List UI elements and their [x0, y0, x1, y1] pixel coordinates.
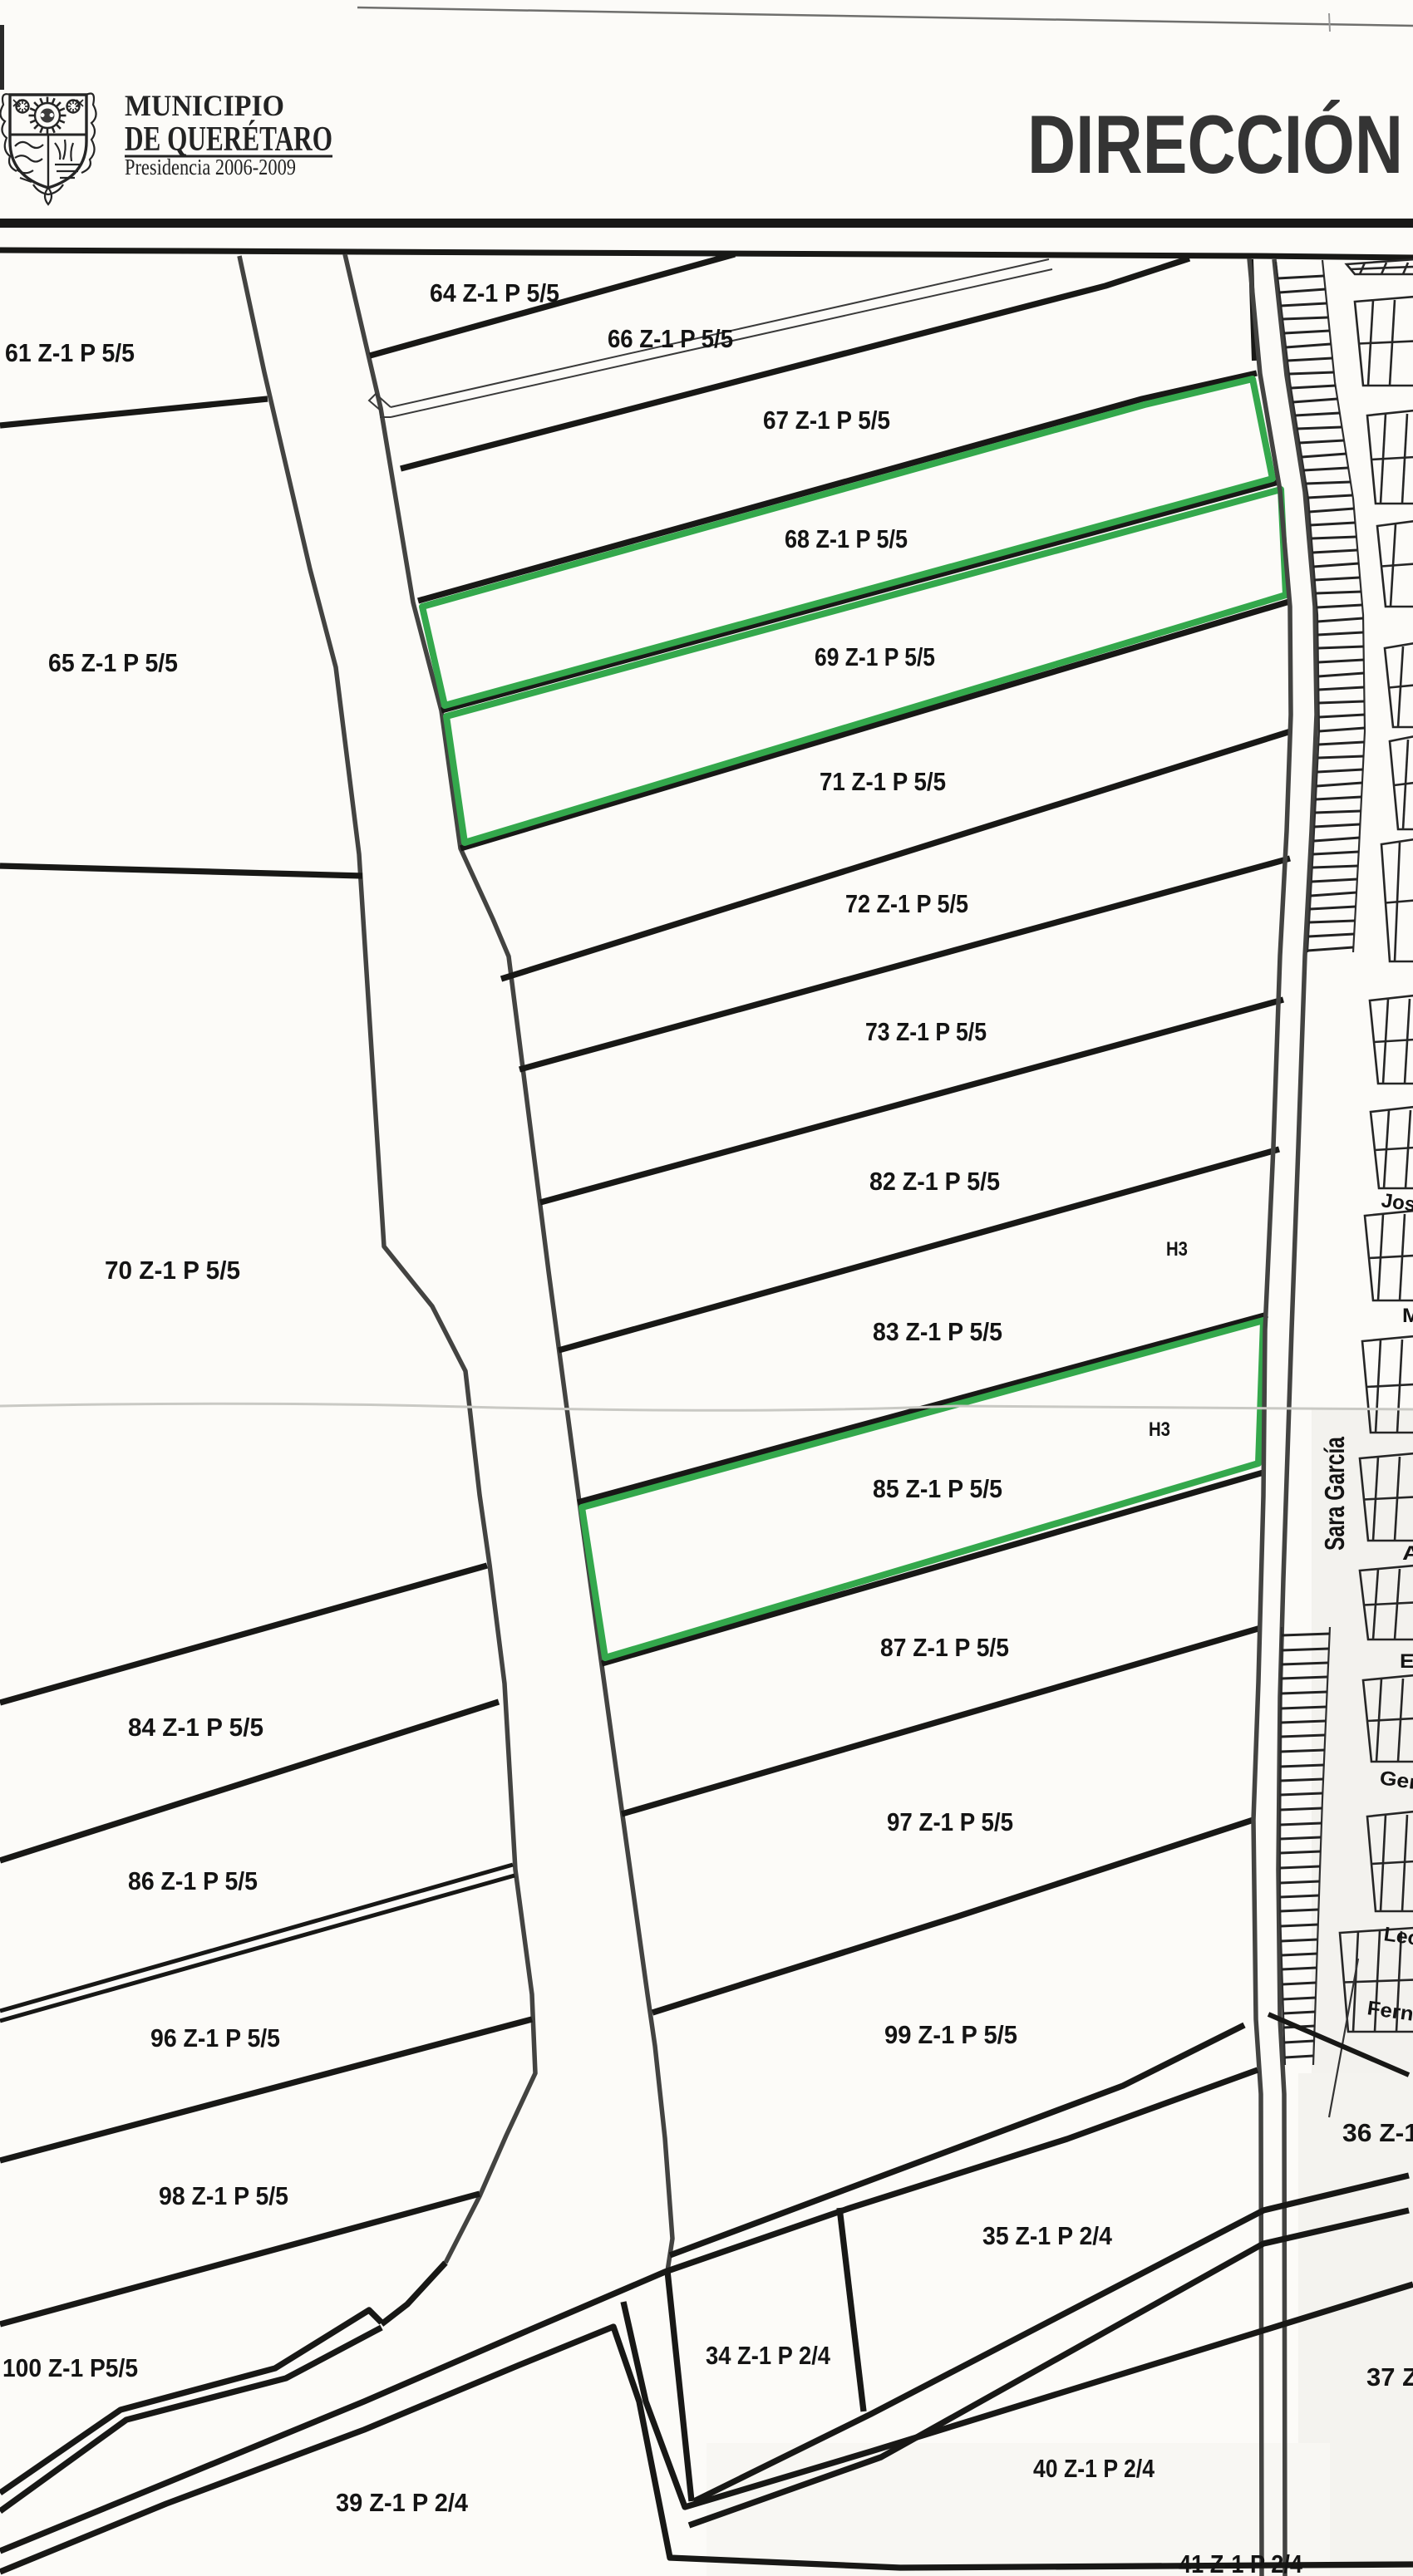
svg-text:36 Z-1: 36 Z-1 [1342, 2118, 1413, 2147]
svg-text:Ma: Ma [1402, 1305, 1413, 1327]
svg-text:73 Z-1 P 5/5: 73 Z-1 P 5/5 [865, 1017, 987, 1046]
svg-text:39 Z-1 P 2/4: 39 Z-1 P 2/4 [336, 2488, 469, 2517]
svg-text:35 Z-1 P 2/4: 35 Z-1 P 2/4 [982, 2221, 1113, 2250]
svg-text:85 Z-1 P 5/5: 85 Z-1 P 5/5 [873, 1474, 1002, 1503]
svg-text:H3: H3 [1166, 1238, 1188, 1261]
svg-text:66 Z-1 P 5/5: 66 Z-1 P 5/5 [608, 324, 733, 353]
svg-text:99 Z-1 P 5/5: 99 Z-1 P 5/5 [884, 2020, 1017, 2049]
svg-text:65 Z-1 P 5/5: 65 Z-1 P 5/5 [48, 648, 178, 677]
svg-text:40 Z-1 P 2/4: 40 Z-1 P 2/4 [1033, 2454, 1155, 2483]
svg-text:70 Z-1 P 5/5: 70 Z-1 P 5/5 [105, 1256, 240, 1285]
svg-text:82 Z-1 P 5/5: 82 Z-1 P 5/5 [869, 1167, 1000, 1196]
svg-text:71 Z-1 P 5/5: 71 Z-1 P 5/5 [820, 767, 946, 796]
svg-text:69 Z-1 P 5/5: 69 Z-1 P 5/5 [815, 642, 935, 671]
svg-text:97 Z-1 P 5/5: 97 Z-1 P 5/5 [887, 1807, 1013, 1836]
svg-text:Al: Al [1402, 1542, 1413, 1565]
svg-text:100 Z-1 P5/5: 100 Z-1 P5/5 [2, 2353, 138, 2382]
svg-text:67 Z-1 P 5/5: 67 Z-1 P 5/5 [763, 406, 890, 435]
svg-text:87 Z-1 P 5/5: 87 Z-1 P 5/5 [880, 1633, 1009, 1662]
svg-text:DIRECCIÓN: DIRECCIÓN [1027, 98, 1403, 190]
svg-text:41 Z-1 P 2/4: 41 Z-1 P 2/4 [1179, 2549, 1303, 2576]
svg-text:En: En [1400, 1650, 1413, 1673]
svg-text:84 Z-1 P 5/5: 84 Z-1 P 5/5 [128, 1713, 263, 1742]
svg-text:64 Z-1 P 5/5: 64 Z-1 P 5/5 [430, 278, 559, 307]
svg-text:DE QUERÉTARO: DE QUERÉTARO [125, 120, 332, 159]
svg-text:Sara García: Sara García [1319, 1437, 1350, 1551]
svg-text:98 Z-1 P 5/5: 98 Z-1 P 5/5 [159, 2181, 288, 2210]
svg-text:72 Z-1 P 5/5: 72 Z-1 P 5/5 [845, 889, 968, 918]
svg-text:Presidencia 2006-2009: Presidencia 2006-2009 [125, 155, 296, 179]
svg-text:34 Z-1 P 2/4: 34 Z-1 P 2/4 [706, 2341, 831, 2370]
svg-text:H3: H3 [1149, 1418, 1170, 1441]
svg-text:68 Z-1 P 5/5: 68 Z-1 P 5/5 [785, 524, 908, 553]
svg-text:37 Z: 37 Z [1366, 2362, 1413, 2392]
svg-text:86 Z-1 P 5/5: 86 Z-1 P 5/5 [128, 1866, 258, 1895]
svg-text:61 Z-1 P 5/5: 61 Z-1 P 5/5 [5, 338, 135, 367]
svg-text:96 Z-1 P 5/5: 96 Z-1 P 5/5 [150, 2023, 280, 2052]
svg-text:83 Z-1 P 5/5: 83 Z-1 P 5/5 [873, 1317, 1002, 1346]
svg-text:MUNICIPIO: MUNICIPIO [125, 89, 284, 122]
